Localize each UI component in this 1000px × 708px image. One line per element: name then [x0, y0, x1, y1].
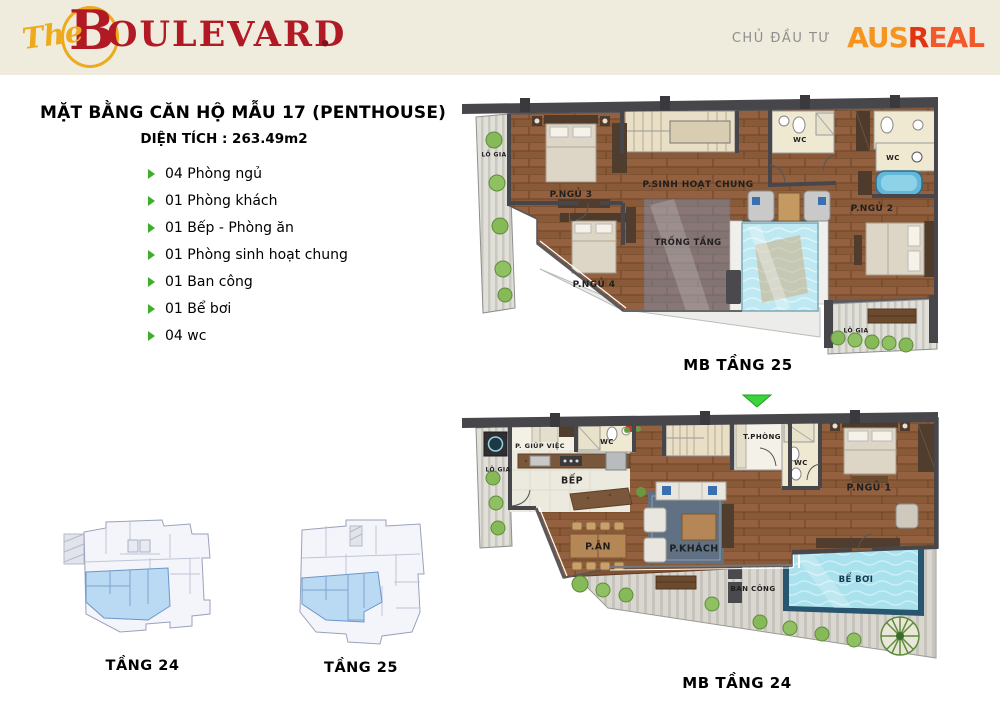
ausreal-logo: AUSREAL — [847, 24, 984, 52]
washer-icon — [484, 432, 507, 456]
bullet-arrow-icon — [148, 277, 155, 287]
page-title: MẶT BẰNG CĂN HỘ MẪU 17 (PENTHOUSE) — [40, 103, 446, 123]
key-plan-24: TẦNG 24 — [50, 514, 235, 674]
room-label-p-ngu-4: P.NGỦ 4 — [573, 280, 616, 290]
feature-text: 01 Ban công — [165, 274, 253, 290]
feature-text: 04 Phòng ngủ — [165, 166, 262, 182]
feature-item: 01 Ban công — [148, 268, 348, 295]
stairs-icon — [625, 111, 735, 152]
bullet-arrow-icon — [148, 250, 155, 260]
room-label-p-ngu-3: P.NGỦ 3 — [550, 190, 593, 200]
room-label-be-boi: BỂ BƠI — [839, 575, 874, 585]
room-label-wc: WC — [600, 438, 614, 446]
floor-plan-25: LÔ GIA P.NGỦ 3 P.NGỦ 4 P.SINH HOẠT CHUNG… — [460, 95, 940, 357]
feature-item: 04 wc — [148, 322, 348, 349]
plan-25-caption: MB TẦNG 25 — [638, 356, 838, 374]
room-label-p-ngu-1: P.NGỦ 1 — [846, 483, 891, 494]
room-label-wc: WC — [793, 136, 807, 144]
floor-plan-25-graphic — [460, 95, 940, 357]
room-label-p-an: P.ĂN — [585, 542, 611, 553]
bullet-arrow-icon — [148, 169, 155, 179]
bed-icon — [854, 221, 934, 277]
bathtub-icon — [876, 171, 922, 195]
room-label-trong-tang: TRỐNG TẦNG — [654, 238, 721, 248]
room-label-lo-gia: LÔ GIA — [482, 152, 507, 159]
developer-label: CHỦ ĐẦU TƯ — [732, 31, 831, 46]
bench-icon — [656, 576, 696, 589]
feature-item: 01 Phòng khách — [148, 187, 348, 214]
room-label-p-ngu-2: P.NGỦ 2 — [851, 204, 894, 214]
pool-void — [742, 223, 818, 311]
ausreal-aus: AUS — [847, 21, 908, 54]
feature-text: 01 Phòng khách — [165, 193, 278, 209]
feature-item: 04 Phòng ngủ — [148, 160, 348, 187]
bed-icon — [532, 115, 627, 182]
room-label-lo-gia-2: LÔ GIA — [844, 328, 869, 335]
armchairs — [748, 191, 830, 221]
stairs-icon — [666, 420, 730, 456]
key-plan-24-caption: TẦNG 24 — [50, 658, 235, 674]
ausreal-r: R — [908, 21, 929, 54]
room-label-p-khach: P.KHÁCH — [669, 544, 718, 555]
ausreal-eal: EAL — [928, 21, 984, 54]
bullet-arrow-icon — [148, 196, 155, 206]
room-label-t-phong: T.PHÒNG — [743, 433, 781, 441]
umbrella-icon — [881, 617, 919, 655]
developer-block: CHỦ ĐẦU TƯ AUSREAL — [732, 24, 984, 52]
feature-item: 01 Bếp - Phòng ăn — [148, 214, 348, 241]
logo-wordmark: OULEVARD — [107, 14, 346, 55]
bullet-arrow-icon — [148, 304, 155, 314]
room-label-ban-cong: BAN CÔNG — [731, 585, 776, 593]
bullet-arrow-icon — [148, 223, 155, 233]
room-label-lo-gia: LÔ GIA — [486, 467, 511, 474]
room-label-p-sinh-hoat-chung: P.SINH HOẠT CHUNG — [643, 180, 754, 190]
logo-dot: . — [319, 14, 331, 55]
feature-text: 01 Bếp - Phòng ăn — [165, 220, 294, 236]
area-label: DIỆN TÍCH : 263.49m2 — [40, 131, 408, 147]
key-plan-25-graphic — [286, 516, 436, 651]
floor-plan-24: LÔ GIA P. GIÚP VIỆC WC BẾP T.PHÒNG WC P.… — [460, 408, 940, 663]
key-plan-25-caption: TẦNG 25 — [286, 660, 436, 676]
brochure-page: B The OULEVARD . CHỦ ĐẦU TƯ AUSREAL MẶT … — [0, 0, 1000, 708]
room-label-p-giup-viec: P. GIÚP VIỆC — [515, 442, 565, 450]
header-band: B The OULEVARD . CHỦ ĐẦU TƯ AUSREAL — [0, 0, 1000, 75]
boulevard-logo: B The OULEVARD . — [14, 4, 344, 72]
feature-item: 01 Bể bơi — [148, 295, 348, 322]
key-plan-25: TẦNG 25 — [286, 516, 436, 676]
feature-item: 01 Phòng sinh hoạt chung — [148, 241, 348, 268]
room-label-wc: WC — [886, 154, 900, 162]
key-plan-24-graphic — [50, 514, 235, 649]
feature-text: 04 wc — [165, 328, 206, 344]
room-label-bep: BẾP — [561, 476, 583, 487]
feature-text: 01 Bể bơi — [165, 301, 231, 317]
plan-24-caption: MB TẦNG 24 — [637, 674, 837, 692]
bench-icon — [868, 309, 916, 323]
feature-list: 04 Phòng ngủ 01 Phòng khách 01 Bếp - Phò… — [148, 160, 348, 349]
bullet-arrow-icon — [148, 331, 155, 341]
room-label-wc: WC — [794, 459, 808, 467]
feature-text: 01 Phòng sinh hoạt chung — [165, 247, 348, 263]
